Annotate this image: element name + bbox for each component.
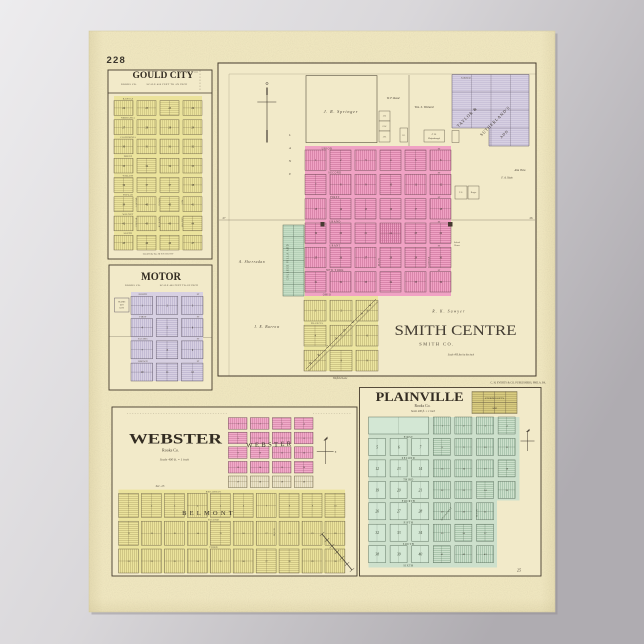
svg-text:FIRST: FIRST bbox=[139, 316, 147, 318]
svg-text:BROWN: BROWN bbox=[138, 361, 148, 363]
svg-text:MAIN: MAIN bbox=[378, 258, 381, 266]
svg-text:29: 29 bbox=[311, 561, 313, 563]
svg-text:40: 40 bbox=[419, 553, 423, 557]
svg-text:FRANCIS: FRANCIS bbox=[311, 322, 324, 325]
svg-text:7: 7 bbox=[419, 445, 421, 449]
svg-text:Scale 400 ft. = 1 inch: Scale 400 ft. = 1 inch bbox=[160, 458, 190, 462]
svg-text:RAILROAD: RAILROAD bbox=[461, 77, 471, 80]
svg-text:WALNUT: WALNUT bbox=[123, 213, 134, 216]
svg-text:ROOKS CO.: ROOKS CO. bbox=[125, 284, 141, 287]
svg-text:SCALE 400 FEET TO AN INCH: SCALE 400 FEET TO AN INCH bbox=[146, 83, 187, 86]
svg-text:SOUTH: SOUTH bbox=[124, 233, 133, 235]
svg-text:27: 27 bbox=[223, 216, 227, 220]
svg-text:Winfield Lane: Winfield Lane bbox=[333, 377, 348, 380]
svg-text:25: 25 bbox=[517, 568, 521, 573]
svg-text:F. W.: F. W. bbox=[431, 133, 437, 136]
svg-text:BELMONT: BELMONT bbox=[182, 510, 236, 517]
svg-text:WILLOW: WILLOW bbox=[123, 175, 134, 177]
svg-text:E: E bbox=[288, 172, 291, 176]
svg-text:POPLAR: POPLAR bbox=[123, 194, 133, 197]
svg-text:House: House bbox=[454, 245, 460, 247]
svg-text:11: 11 bbox=[281, 452, 283, 454]
svg-text:Sec. 25: Sec. 25 bbox=[156, 484, 165, 488]
svg-text:LOTS: LOTS bbox=[119, 308, 124, 310]
svg-text:WEBSTER: WEBSTER bbox=[129, 432, 222, 448]
svg-text:L: L bbox=[288, 133, 291, 137]
svg-text:228: 228 bbox=[107, 55, 126, 66]
svg-text:SIXTH: SIXTH bbox=[403, 564, 413, 567]
svg-text:J. R. Springer: J. R. Springer bbox=[324, 109, 358, 114]
svg-text:12: 12 bbox=[303, 452, 305, 454]
svg-text:ADD: ADD bbox=[492, 407, 497, 410]
svg-text:Rooks Co.: Rooks Co. bbox=[162, 448, 179, 453]
svg-text:38: 38 bbox=[375, 553, 379, 557]
svg-text:MAIN: MAIN bbox=[476, 509, 479, 517]
svg-text:28: 28 bbox=[419, 510, 423, 514]
svg-text:13: 13 bbox=[397, 467, 401, 471]
svg-text:J.W.: J.W. bbox=[383, 137, 387, 139]
svg-text:FRANKS: FRANKS bbox=[118, 301, 125, 304]
svg-text:DEPOT: DEPOT bbox=[124, 156, 133, 158]
svg-text:Rooks Co.: Rooks Co. bbox=[414, 404, 430, 408]
svg-text:CALIFORNIA: CALIFORNIA bbox=[120, 136, 136, 139]
svg-text:Wm. S. Wishard: Wm. S. Wishard bbox=[414, 105, 434, 109]
svg-text:MAIN: MAIN bbox=[273, 528, 276, 536]
svg-text:32: 32 bbox=[375, 531, 379, 535]
svg-text:Scale 400 ft. = 1 inch: Scale 400 ft. = 1 inch bbox=[411, 410, 436, 413]
svg-text:J.H.: J.H. bbox=[383, 116, 387, 118]
svg-text:SCALE 400 FEET TO AN INCH: SCALE 400 FEET TO AN INCH bbox=[160, 284, 199, 287]
svg-text:G.W.: G.W. bbox=[382, 126, 387, 128]
svg-text:19: 19 bbox=[311, 533, 313, 535]
svg-text:1: 1 bbox=[237, 423, 238, 425]
svg-text:12: 12 bbox=[151, 533, 153, 535]
svg-text:39: 39 bbox=[397, 553, 401, 557]
svg-text:CEDAR: CEDAR bbox=[158, 198, 161, 206]
svg-text:KANSAS: KANSAS bbox=[123, 97, 134, 100]
svg-text:Alta Vista: Alta Vista bbox=[514, 169, 527, 172]
svg-text:22: 22 bbox=[151, 561, 153, 563]
svg-text:ELM: ELM bbox=[182, 200, 184, 205]
svg-text:POPLAR: POPLAR bbox=[135, 217, 138, 226]
svg-text:COLLEGE VILLA ADD: COLLEGE VILLA ADD bbox=[287, 244, 290, 280]
svg-text:Gould City Sec 24 T 8 S R 19: Gould City Sec 24 T 8 S R 19 W bbox=[143, 252, 175, 255]
svg-text:9: 9 bbox=[312, 505, 313, 507]
svg-text:21: 21 bbox=[128, 561, 130, 563]
svg-text:OHIO: OHIO bbox=[323, 293, 331, 296]
svg-text:NORTH: NORTH bbox=[139, 294, 148, 296]
svg-text:33: 33 bbox=[397, 531, 401, 535]
svg-text:Dufenbaugh: Dufenbaugh bbox=[427, 137, 441, 140]
svg-text:26: 26 bbox=[530, 216, 534, 220]
svg-text:11: 11 bbox=[128, 533, 130, 535]
svg-text:6: 6 bbox=[398, 445, 400, 449]
svg-text:W. F. Read: W. F. Read bbox=[387, 96, 400, 100]
svg-text:Berger: Berger bbox=[471, 191, 477, 194]
svg-text:27: 27 bbox=[397, 510, 401, 514]
svg-text:19: 19 bbox=[375, 488, 379, 492]
svg-text:School: School bbox=[454, 242, 460, 244]
svg-text:NEBRASKA: NEBRASKA bbox=[121, 117, 135, 120]
svg-text:1: 1 bbox=[128, 505, 129, 507]
svg-text:SMITH CO.: SMITH CO. bbox=[419, 342, 454, 347]
svg-text:34: 34 bbox=[419, 531, 423, 535]
svg-text:5: 5 bbox=[376, 445, 378, 449]
svg-text:2: 2 bbox=[151, 505, 152, 507]
svg-text:R. K. Sawyer: R. K. Sawyer bbox=[431, 310, 465, 314]
svg-text:MOTOR: MOTOR bbox=[141, 271, 182, 283]
svg-text:26: 26 bbox=[375, 510, 379, 514]
svg-text:19: 19 bbox=[281, 482, 283, 484]
svg-text:9: 9 bbox=[237, 452, 238, 454]
svg-text:PACIFIC: PACIFIC bbox=[138, 338, 148, 341]
svg-text:BROADWAY: BROADWAY bbox=[206, 491, 222, 494]
svg-text:HICKORY: HICKORY bbox=[159, 216, 161, 227]
svg-text:WALNUT: WALNUT bbox=[181, 217, 184, 227]
svg-text:20: 20 bbox=[397, 488, 401, 492]
svg-text:KANSAS: KANSAS bbox=[428, 256, 431, 268]
svg-text:ROOKS CO.: ROOKS CO. bbox=[121, 83, 137, 86]
svg-text:GOULD CITY: GOULD CITY bbox=[133, 71, 194, 81]
svg-text:LOCUST: LOCUST bbox=[136, 197, 138, 207]
svg-text:PLAINVILLE: PLAINVILLE bbox=[376, 389, 464, 404]
svg-text:F. S.: F. S. bbox=[459, 192, 463, 194]
svg-text:A. Sherradan: A. Sherradan bbox=[238, 260, 265, 264]
svg-text:J. E. Barrow: J. E. Barrow bbox=[254, 325, 279, 329]
svg-text:2: 2 bbox=[259, 423, 260, 425]
svg-text:C. H. EVERTS & CO. PUBLISHERS,: C. H. EVERTS & CO. PUBLISHERS, PHILA. PA… bbox=[490, 382, 546, 385]
svg-text:A: A bbox=[288, 146, 291, 150]
svg-text:SMITH CENTRE: SMITH CENTRE bbox=[395, 323, 517, 339]
svg-text:14: 14 bbox=[419, 467, 423, 471]
svg-text:STURDEVANT'S: STURDEVANT'S bbox=[485, 397, 505, 400]
svg-text:Scale 400 feet to the inch: Scale 400 feet to the inch bbox=[448, 354, 475, 357]
svg-text:12: 12 bbox=[375, 467, 379, 471]
svg-text:F. A. Stats: F. A. Stats bbox=[500, 177, 512, 180]
svg-text:21: 21 bbox=[419, 488, 423, 492]
